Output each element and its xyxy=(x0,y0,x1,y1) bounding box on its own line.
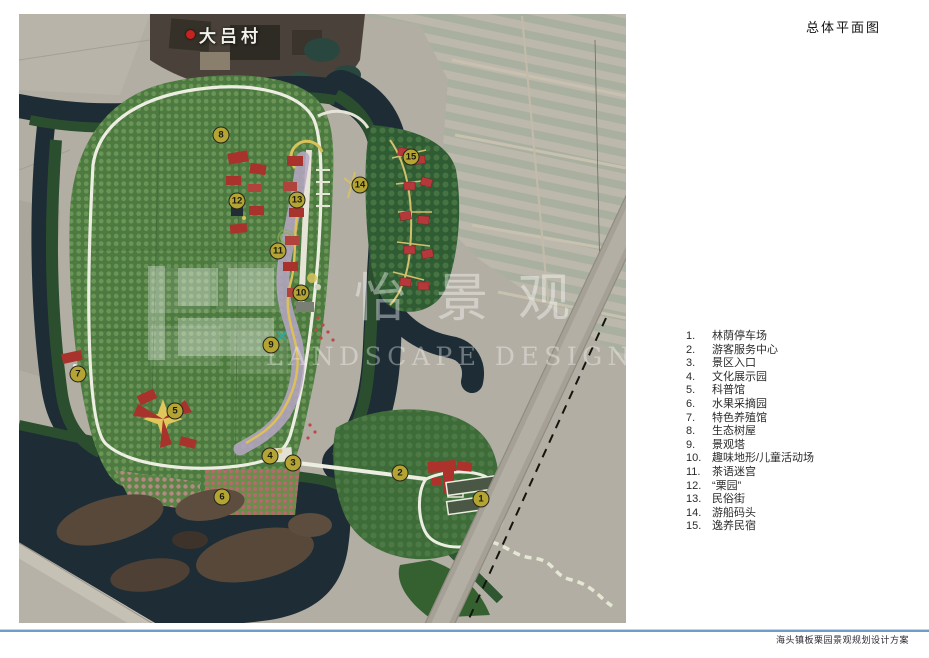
site-plan-drawing xyxy=(19,14,626,623)
map-marker-2: 2 xyxy=(392,465,409,482)
legend-item-label: 游船码头 xyxy=(712,507,756,521)
legend-item-number: 1. xyxy=(686,330,712,344)
legend-item: 12.“栗园” xyxy=(686,480,814,494)
project-caption: 海头镇板栗园景观规划设计方案 xyxy=(776,633,909,646)
legend-item: 14.游船码头 xyxy=(686,507,814,521)
map-marker-9: 9 xyxy=(263,337,280,354)
village-label: 大吕村 xyxy=(186,22,262,47)
legend-item-number: 11. xyxy=(686,466,712,480)
legend-item: 13.民俗街 xyxy=(686,493,814,507)
legend-item-number: 5. xyxy=(686,384,712,398)
legend-item-number: 6. xyxy=(686,398,712,412)
legend-item-label: 水果采摘园 xyxy=(712,398,767,412)
map-marker-5: 5 xyxy=(167,403,184,420)
legend-item: 4.文化展示园 xyxy=(686,371,814,385)
legend-item-label: 生态树屋 xyxy=(712,425,756,439)
legend-item-number: 7. xyxy=(686,412,712,426)
legend-item-label: 文化展示园 xyxy=(712,371,767,385)
legend-item: 11.茶语迷宫 xyxy=(686,466,814,480)
title-block-rule xyxy=(0,629,929,632)
map-marker-10: 10 xyxy=(293,285,310,302)
legend-item-number: 2. xyxy=(686,344,712,358)
sheet-title: 总体平面图 xyxy=(806,17,881,36)
map-marker-12: 12 xyxy=(229,193,246,210)
legend-item-label: 逸养民宿 xyxy=(712,520,756,534)
legend-item: 8.生态树屋 xyxy=(686,425,814,439)
map-marker-15: 15 xyxy=(403,149,420,166)
map-marker-14: 14 xyxy=(352,177,369,194)
legend-item: 15.逸养民宿 xyxy=(686,520,814,534)
map-marker-8: 8 xyxy=(213,127,230,144)
map-marker-6: 6 xyxy=(214,489,231,506)
legend-item: 10.趣味地形/儿童活动场 xyxy=(686,452,814,466)
legend-item-number: 12. xyxy=(686,480,712,494)
legend-item-label: 林荫停车场 xyxy=(712,330,767,344)
legend-item-label: 特色养殖馆 xyxy=(712,412,767,426)
legend-item-label: 景区入口 xyxy=(712,357,756,371)
legend-item-number: 15. xyxy=(686,520,712,534)
legend-item-label: “栗园” xyxy=(712,480,741,494)
legend-item-label: 景观塔 xyxy=(712,439,745,453)
legend-item-number: 3. xyxy=(686,357,712,371)
legend-item-number: 13. xyxy=(686,493,712,507)
legend-item: 2.游客服务中心 xyxy=(686,344,814,358)
legend-item-number: 10. xyxy=(686,452,712,466)
legend-item-label: 茶语迷宫 xyxy=(712,466,756,480)
legend-item-number: 8. xyxy=(686,425,712,439)
legend-item: 3.景区入口 xyxy=(686,357,814,371)
legend-item-label: 科普馆 xyxy=(712,384,745,398)
map-marker-4: 4 xyxy=(262,448,279,465)
map-marker-1: 1 xyxy=(473,491,490,508)
legend-item: 1.林荫停车场 xyxy=(686,330,814,344)
map-marker-3: 3 xyxy=(285,455,302,472)
legend: 1.林荫停车场 2.游客服务中心 3.景区入口 4.文化展示园 5.科普馆 6.… xyxy=(686,330,814,534)
plan-sheet: 大吕村 怡景观 LANDSCAPE DESIGN 1 2 3 4 5 6 7 8… xyxy=(0,0,929,658)
legend-item-label: 民俗街 xyxy=(712,493,745,507)
village-name: 大吕村 xyxy=(199,22,262,47)
legend-item-label: 趣味地形/儿童活动场 xyxy=(712,452,814,466)
legend-item-number: 4. xyxy=(686,371,712,385)
map-marker-7: 7 xyxy=(70,366,87,383)
map-marker-13: 13 xyxy=(289,192,306,209)
legend-item: 9.景观塔 xyxy=(686,439,814,453)
legend-item: 7.特色养殖馆 xyxy=(686,412,814,426)
map-marker-11: 11 xyxy=(270,243,287,260)
village-marker-dot xyxy=(186,30,195,39)
legend-item-label: 游客服务中心 xyxy=(712,344,778,358)
legend-item: 6.水果采摘园 xyxy=(686,398,814,412)
legend-item-number: 9. xyxy=(686,439,712,453)
legend-item: 5.科普馆 xyxy=(686,384,814,398)
legend-item-number: 14. xyxy=(686,507,712,521)
